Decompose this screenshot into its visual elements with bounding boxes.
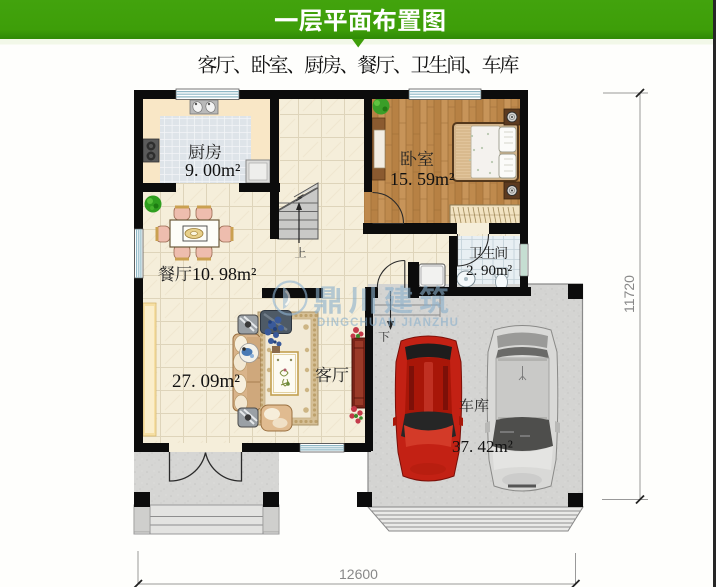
svg-text:37. 42m²: 37. 42m² (452, 437, 513, 456)
svg-text:9. 00m²: 9. 00m² (185, 160, 240, 180)
svg-text:15. 59m²: 15. 59m² (390, 169, 454, 189)
svg-text:10. 98m²: 10. 98m² (192, 264, 256, 284)
svg-text:12600: 12600 (339, 566, 378, 582)
svg-text:2. 90m²: 2. 90m² (466, 263, 513, 279)
svg-text:DINGCHUAN JIANZHU: DINGCHUAN JIANZHU (317, 317, 459, 329)
svg-text:11720: 11720 (621, 275, 637, 313)
svg-text:27. 09m²: 27. 09m² (172, 371, 240, 392)
